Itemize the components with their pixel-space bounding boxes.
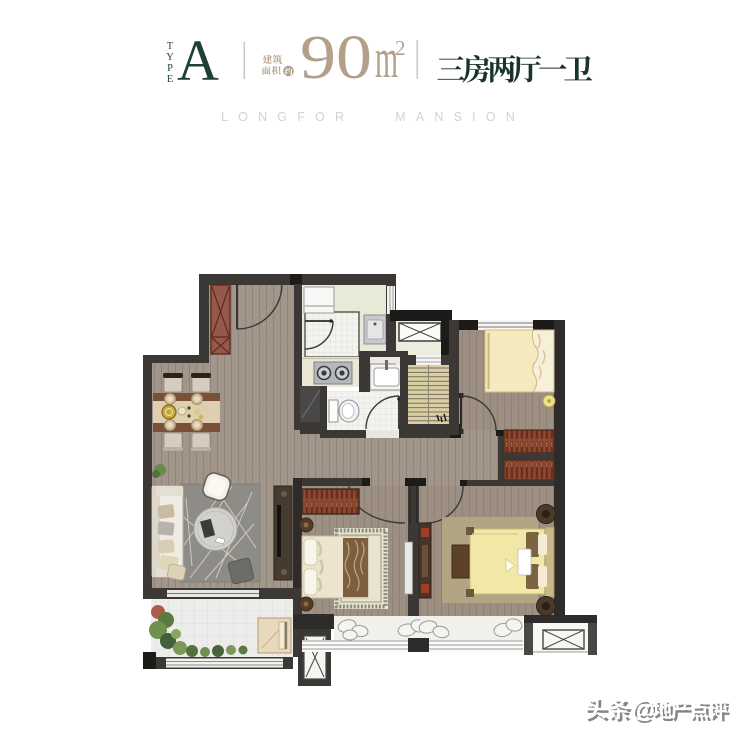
svg-text:90: 90 [300,24,372,92]
svg-text:Y: Y [166,52,174,63]
svg-text:P: P [167,63,173,74]
svg-text:LONGFOR MANSION: LONGFOR MANSION [221,110,525,124]
svg-text:2: 2 [395,36,406,60]
svg-text:@: @ [631,696,654,723]
svg-text:A: A [177,28,219,93]
svg-text:T: T [167,41,174,52]
svg-text:E: E [167,74,173,85]
